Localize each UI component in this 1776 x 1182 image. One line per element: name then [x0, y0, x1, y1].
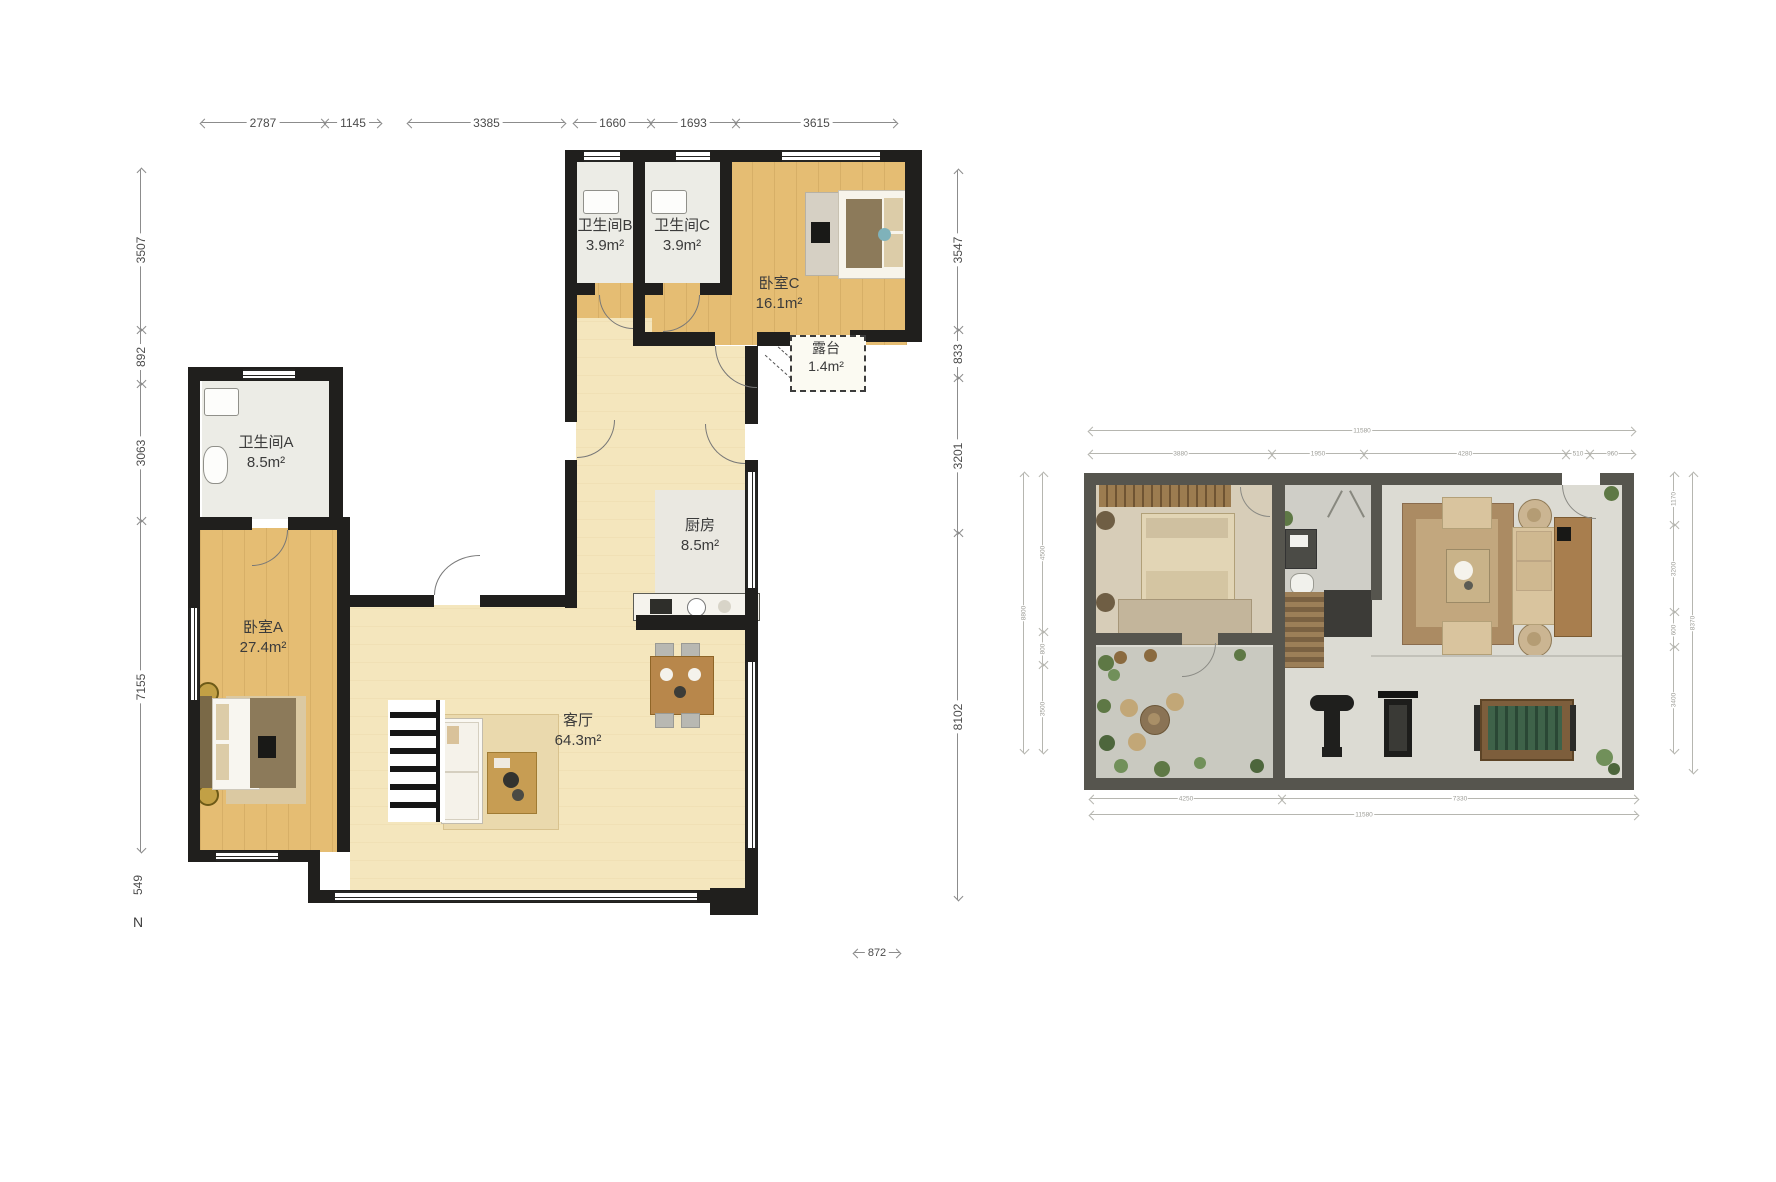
kitchen-stove: [650, 599, 672, 614]
dim-top-seg: 3880: [1089, 453, 1272, 454]
dim-right-seg: 1170: [1673, 473, 1674, 525]
dim-bottom-seg: 4250: [1090, 798, 1282, 799]
plant: [1154, 761, 1170, 777]
dim-top: 3385: [408, 122, 565, 123]
room-name: 卫生间A: [238, 433, 293, 453]
table-decor: [503, 772, 519, 788]
wall: [337, 595, 434, 607]
wall: [329, 367, 343, 519]
dim-left-seg: 800: [1042, 632, 1043, 665]
dim-label: 600: [1671, 623, 1678, 636]
wall: [1096, 633, 1182, 645]
plant-pot: [1114, 651, 1127, 664]
floorplan-canvas: 卫生间B 3.9m² 卫生间C 3.9m² 卧室C 16.1m² 露台 1.4m…: [0, 0, 1776, 1182]
sofa-bottom: [1442, 621, 1492, 655]
dim-label: 1950: [1310, 451, 1326, 458]
window: [216, 851, 278, 861]
dim-top-seg: 4280: [1364, 453, 1566, 454]
dim-bottom-total: 11580: [1090, 814, 1638, 815]
wall: [288, 517, 343, 530]
floor-hall-left: [576, 318, 652, 610]
wall: [1084, 778, 1634, 790]
dim-right-total: 8370: [1692, 473, 1693, 773]
dim-right-seg: 600: [1673, 612, 1674, 647]
dim-top-seg: 510: [1566, 453, 1590, 454]
dim-right-seg: 3400: [1673, 647, 1674, 753]
plant: [1604, 486, 1619, 501]
dim-top: 1145: [325, 122, 381, 123]
wall: [480, 595, 577, 607]
bath-sink: [1290, 535, 1308, 547]
wall: [757, 332, 790, 346]
tv-device: [1557, 527, 1571, 541]
bed-c-pillow: [884, 198, 903, 231]
wall: [905, 150, 922, 342]
plant-pot: [1144, 649, 1157, 662]
window: [335, 891, 697, 902]
wall: [1272, 485, 1285, 645]
table-plate: [1454, 561, 1473, 580]
dim-label: 1693: [677, 116, 710, 130]
wall: [1084, 473, 1634, 485]
dim-label: 3400: [1671, 692, 1678, 708]
right-floorplan: [1084, 473, 1634, 790]
terrace-table-top: [1148, 713, 1160, 725]
wall: [720, 150, 732, 295]
dim-top: 2787: [201, 122, 325, 123]
sofa-cushion: [444, 772, 479, 820]
dim-label: 8370: [1690, 615, 1697, 631]
room-area: 8.5m²: [681, 536, 719, 556]
window: [676, 150, 710, 162]
plate: [688, 668, 701, 681]
dim-label: 892: [134, 344, 148, 370]
wall: [565, 283, 595, 295]
wardrobe: [1099, 483, 1231, 507]
window: [746, 472, 757, 588]
compass-north-label: N: [133, 914, 143, 930]
dim-label: 3385: [470, 116, 503, 130]
dim-left: 7155: [140, 521, 141, 852]
wall: [565, 460, 577, 608]
plant: [1194, 757, 1206, 769]
dim-label: 2787: [247, 116, 280, 130]
entry-door-gap: [1562, 473, 1600, 485]
weight-bench-bar: [1378, 691, 1418, 698]
dim-label: 3500: [1040, 701, 1047, 717]
wall: [636, 615, 758, 630]
room-area: 3.9m²: [577, 236, 632, 256]
dim-label: 1170: [1671, 491, 1678, 507]
bowl: [674, 686, 686, 698]
room-area: 27.4m²: [240, 638, 287, 658]
room-name: 客厅: [555, 711, 602, 731]
dim-label: 833: [951, 341, 965, 367]
bed-c-tv: [811, 222, 830, 243]
kitchen-item: [718, 600, 731, 613]
plant: [1108, 669, 1120, 681]
room-label-kitchen: 厨房 8.5m²: [681, 516, 719, 555]
dim-right: 833: [957, 330, 958, 378]
room-area: 3.9m²: [654, 236, 710, 256]
dim-top: 1660: [574, 122, 651, 123]
room-label-terrace: 露台 1.4m²: [808, 339, 844, 375]
exercise-bike-body: [1324, 709, 1340, 749]
dim-label: 960: [1606, 451, 1619, 458]
wall: [1084, 473, 1096, 790]
armchair-cushion: [1527, 508, 1541, 522]
dim-label: 4250: [1178, 796, 1194, 803]
window: [243, 369, 295, 380]
dim-label: 3200: [1671, 560, 1678, 576]
dim-left: 892: [140, 330, 141, 384]
dim-left-seg: 3500: [1042, 665, 1043, 753]
weight-bench-pad: [1389, 705, 1407, 751]
bed-a-headboard: [200, 696, 212, 788]
room-name: 卫生间C: [654, 216, 710, 236]
room-area: 16.1m²: [756, 294, 803, 314]
room-area: 64.3m²: [555, 731, 602, 751]
dim-label: 3063: [134, 436, 148, 469]
foosball-rods: [1570, 705, 1576, 751]
wall: [633, 332, 715, 346]
dim-label: 8800: [1021, 605, 1028, 621]
plant: [1250, 759, 1264, 773]
dim-left-total: 8800: [1023, 473, 1024, 753]
room-label-living: 客厅 64.3m²: [555, 711, 602, 750]
dim-right-seg: 3200: [1673, 525, 1674, 612]
wall: [337, 517, 350, 852]
dining-chair: [681, 713, 700, 728]
sink-bath-b: [583, 190, 619, 214]
bed-a-pillow: [216, 704, 229, 740]
dim-right: 3201: [957, 378, 958, 533]
door-arc-storage: [434, 555, 480, 595]
dim-left-seg: 4500: [1042, 473, 1043, 632]
plant: [1097, 699, 1111, 713]
bed-pillows: [1146, 518, 1228, 538]
dim-label: 3201: [951, 439, 965, 472]
room-name: 厨房: [681, 516, 719, 536]
bed-a-tv: [258, 736, 276, 758]
stair-steps: [390, 712, 436, 816]
window: [746, 662, 757, 848]
dim-label: 11580: [1354, 812, 1374, 819]
dim-label: 3547: [951, 234, 965, 267]
dim-right: 3547: [957, 170, 958, 330]
dim-left: 3507: [140, 169, 141, 330]
room-name: 露台: [808, 339, 844, 357]
plant: [1099, 735, 1115, 751]
dim-label: 4500: [1040, 544, 1047, 560]
terrace-chair: [1128, 733, 1146, 751]
dim-left: 3063: [140, 384, 141, 521]
terrace-chair: [1120, 699, 1138, 717]
dim-bottom-seg: 7330: [1282, 798, 1638, 799]
sofa-top: [1442, 497, 1492, 529]
room-name: 卧室A: [240, 618, 287, 638]
wall: [700, 283, 732, 295]
dim-label: 4280: [1457, 451, 1473, 458]
dim-top: 1693: [651, 122, 736, 123]
dim-label: 11580: [1352, 428, 1372, 435]
dim-label: 872: [865, 947, 889, 959]
foosball-rods: [1474, 705, 1480, 751]
window: [584, 150, 620, 162]
dim-label: 7330: [1452, 796, 1468, 803]
room-label-bath-a: 卫生间A 8.5m²: [238, 433, 293, 472]
room-label-bed-c: 卧室C 16.1m²: [756, 274, 803, 313]
sink-bath-c: [651, 190, 687, 214]
plant: [1608, 763, 1620, 775]
stairs: [1283, 592, 1324, 668]
dim-top: 3615: [736, 122, 897, 123]
room-label-bath-c: 卫生间C 3.9m²: [654, 216, 710, 255]
exercise-bike-seat: [1322, 747, 1342, 757]
wall: [1371, 485, 1382, 600]
dim-label: 3880: [1172, 451, 1188, 458]
room-label-bath-b: 卫生间B 3.9m²: [577, 216, 632, 255]
plate: [660, 668, 673, 681]
wall: [710, 888, 758, 915]
wall: [1622, 473, 1634, 790]
table-decor: [1464, 581, 1473, 590]
dim-top-seg: 960: [1590, 453, 1635, 454]
sofa-pillow: [447, 726, 459, 744]
dim-right: 8102: [957, 533, 958, 900]
bed-a-pillow: [216, 744, 229, 780]
nightstand: [1096, 593, 1115, 612]
sink-bath-a: [204, 388, 239, 416]
floor-divider-line: [1371, 655, 1622, 657]
dim-label: 1660: [596, 116, 629, 130]
bed-c-blanket: [846, 199, 882, 268]
room-name: 卫生间B: [577, 216, 632, 236]
wall: [1273, 645, 1285, 778]
dim-label: 800: [1040, 642, 1047, 655]
toilet-bath-a: [203, 446, 228, 484]
dim-label: 1145: [337, 116, 369, 130]
wall: [645, 283, 663, 295]
sofa-long-cushion: [1516, 531, 1552, 561]
plant: [1234, 649, 1246, 661]
plant: [1114, 759, 1128, 773]
terrace-chair: [1166, 693, 1184, 711]
sofa-long-cushion: [1516, 561, 1552, 591]
nightstand: [1096, 511, 1115, 530]
dim-top-total: 11580: [1089, 430, 1635, 431]
dim-label: 510: [1572, 451, 1585, 458]
bed-c-decor: [878, 228, 891, 241]
dim-bottom: 872: [854, 952, 900, 953]
foosball-field: [1488, 706, 1562, 750]
dim-top-seg: 1950: [1272, 453, 1364, 454]
stair-shaft: [1324, 590, 1372, 637]
window: [782, 150, 880, 162]
stair-stringer: [436, 700, 440, 822]
room-name: 卧室C: [756, 274, 803, 294]
dim-label: 3615: [800, 116, 833, 130]
dim-label: 3507: [134, 233, 148, 266]
wall: [1218, 633, 1273, 645]
armchair-cushion: [1527, 632, 1541, 646]
table-tray: [494, 758, 510, 768]
room-area: 1.4m²: [808, 357, 844, 375]
dining-chair: [655, 713, 674, 728]
wall: [633, 150, 645, 346]
window: [189, 608, 199, 700]
room-area: 8.5m²: [238, 453, 293, 473]
dim-label: 549: [131, 875, 145, 895]
dim-label: 8102: [951, 700, 965, 733]
table-decor: [512, 789, 524, 801]
dim-label: 7155: [134, 670, 148, 703]
room-label-bed-a: 卧室A 27.4m²: [240, 618, 287, 657]
